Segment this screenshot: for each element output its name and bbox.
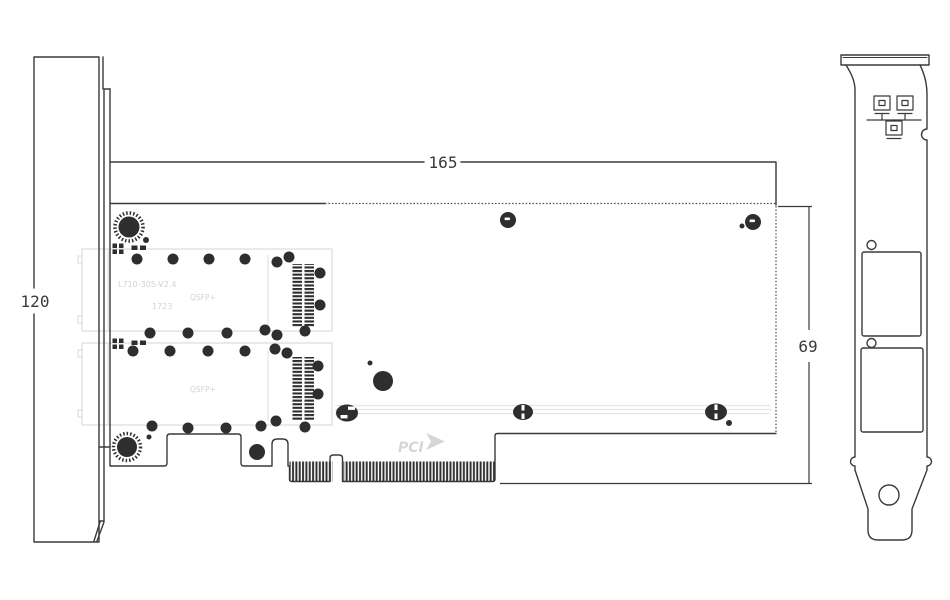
dimension-120-label: 120 <box>21 292 50 311</box>
silkscreen-model-text: L710-305-V2.4 <box>118 280 177 289</box>
pcie-gold-fingers <box>290 462 495 482</box>
drawing-canvas: L710-305-V2.4 1723 QSFP+ QSFP+ PCI 120 <box>0 0 950 600</box>
mounting-post-bottom <box>114 434 141 461</box>
card-top-view <box>110 89 776 482</box>
bracket-flange <box>841 55 929 65</box>
led-hole-2 <box>867 339 876 348</box>
cage-tabs <box>78 256 82 417</box>
screw-hole <box>879 485 899 505</box>
port-cutout-2 <box>861 348 923 432</box>
dimension-165-label: 165 <box>429 153 458 172</box>
cage1-label-text: QSFP+ <box>190 293 216 302</box>
bracket-bottom-tab <box>94 447 110 541</box>
pcie-express-arrow-icon <box>426 433 445 450</box>
dimension-annotations <box>500 207 812 484</box>
bracket-top-hook <box>103 57 110 89</box>
port-cutout-1 <box>862 252 921 336</box>
bracket-body-outline <box>846 65 932 540</box>
card-outline-left-bottom <box>110 89 776 482</box>
dimension-69-label: 69 <box>798 337 817 356</box>
svg-text:PCI: PCI <box>398 440 424 456</box>
component-marks <box>505 218 756 223</box>
silkscreen-layer: L710-305-V2.4 1723 QSFP+ QSFP+ PCI <box>78 249 772 456</box>
ethernet-network-icon <box>867 96 921 139</box>
silkscreen-datecode-text: 1723 <box>152 302 172 311</box>
technical-drawing: L710-305-V2.4 1723 QSFP+ QSFP+ PCI 120 <box>0 0 950 600</box>
mounting-post-top <box>115 213 143 241</box>
oscillator-components <box>336 404 727 422</box>
cage2-label-text: QSFP+ <box>190 385 216 394</box>
pcie-logo: PCI <box>398 433 445 456</box>
led-hole-1 <box>867 241 876 250</box>
bracket-front-view <box>841 55 932 540</box>
